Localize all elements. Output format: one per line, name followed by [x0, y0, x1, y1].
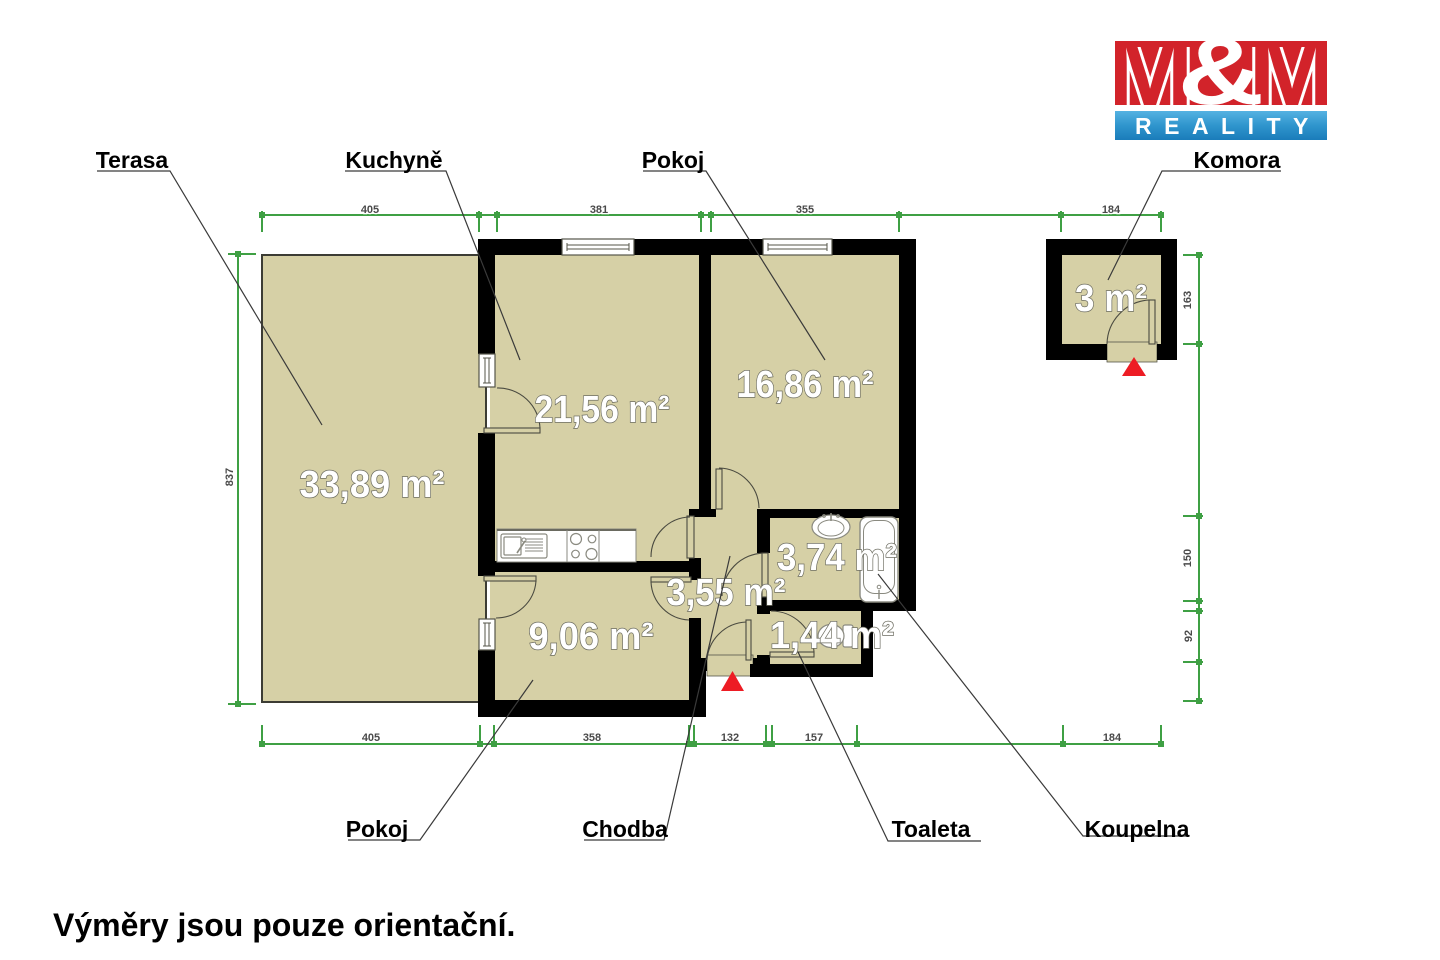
- svg-text:3,55 m²: 3,55 m²: [667, 572, 786, 614]
- svg-text:3 m²: 3 m²: [1075, 278, 1147, 320]
- svg-text:1,44 m²: 1,44 m²: [770, 615, 894, 657]
- svg-text:Kuchyně: Kuchyně: [345, 147, 442, 173]
- svg-text:150: 150: [1182, 549, 1194, 567]
- svg-text:21,56 m²: 21,56 m²: [535, 389, 670, 431]
- svg-text:358: 358: [583, 732, 601, 744]
- svg-text:184: 184: [1102, 204, 1121, 216]
- svg-text:33,89 m²: 33,89 m²: [300, 464, 445, 506]
- svg-text:REALITY: REALITY: [1135, 113, 1321, 139]
- svg-text:Pokoj: Pokoj: [346, 816, 409, 842]
- svg-text:Výměry jsou pouze orientační.: Výměry jsou pouze orientační.: [53, 907, 515, 943]
- svg-text:3,74 m²: 3,74 m²: [777, 537, 897, 579]
- svg-text:Chodba: Chodba: [582, 816, 668, 842]
- svg-text:16,86 m²: 16,86 m²: [737, 364, 874, 406]
- svg-text:163: 163: [1182, 291, 1194, 309]
- svg-text:Toaleta: Toaleta: [892, 816, 971, 842]
- svg-text:132: 132: [721, 732, 739, 744]
- svg-text:405: 405: [362, 732, 380, 744]
- svg-text:184: 184: [1103, 732, 1122, 744]
- svg-text:157: 157: [805, 732, 823, 744]
- svg-text:837: 837: [224, 468, 236, 486]
- svg-text:92: 92: [1183, 630, 1195, 642]
- svg-text:Pokoj: Pokoj: [642, 147, 705, 173]
- svg-text:Terasa: Terasa: [96, 147, 169, 173]
- svg-text:405: 405: [361, 204, 379, 216]
- svg-text:355: 355: [796, 204, 814, 216]
- svg-text:9,06 m²: 9,06 m²: [529, 616, 654, 658]
- svg-text:Koupelna: Koupelna: [1085, 816, 1190, 842]
- svg-text:381: 381: [590, 204, 608, 216]
- svg-text:Komora: Komora: [1194, 147, 1281, 173]
